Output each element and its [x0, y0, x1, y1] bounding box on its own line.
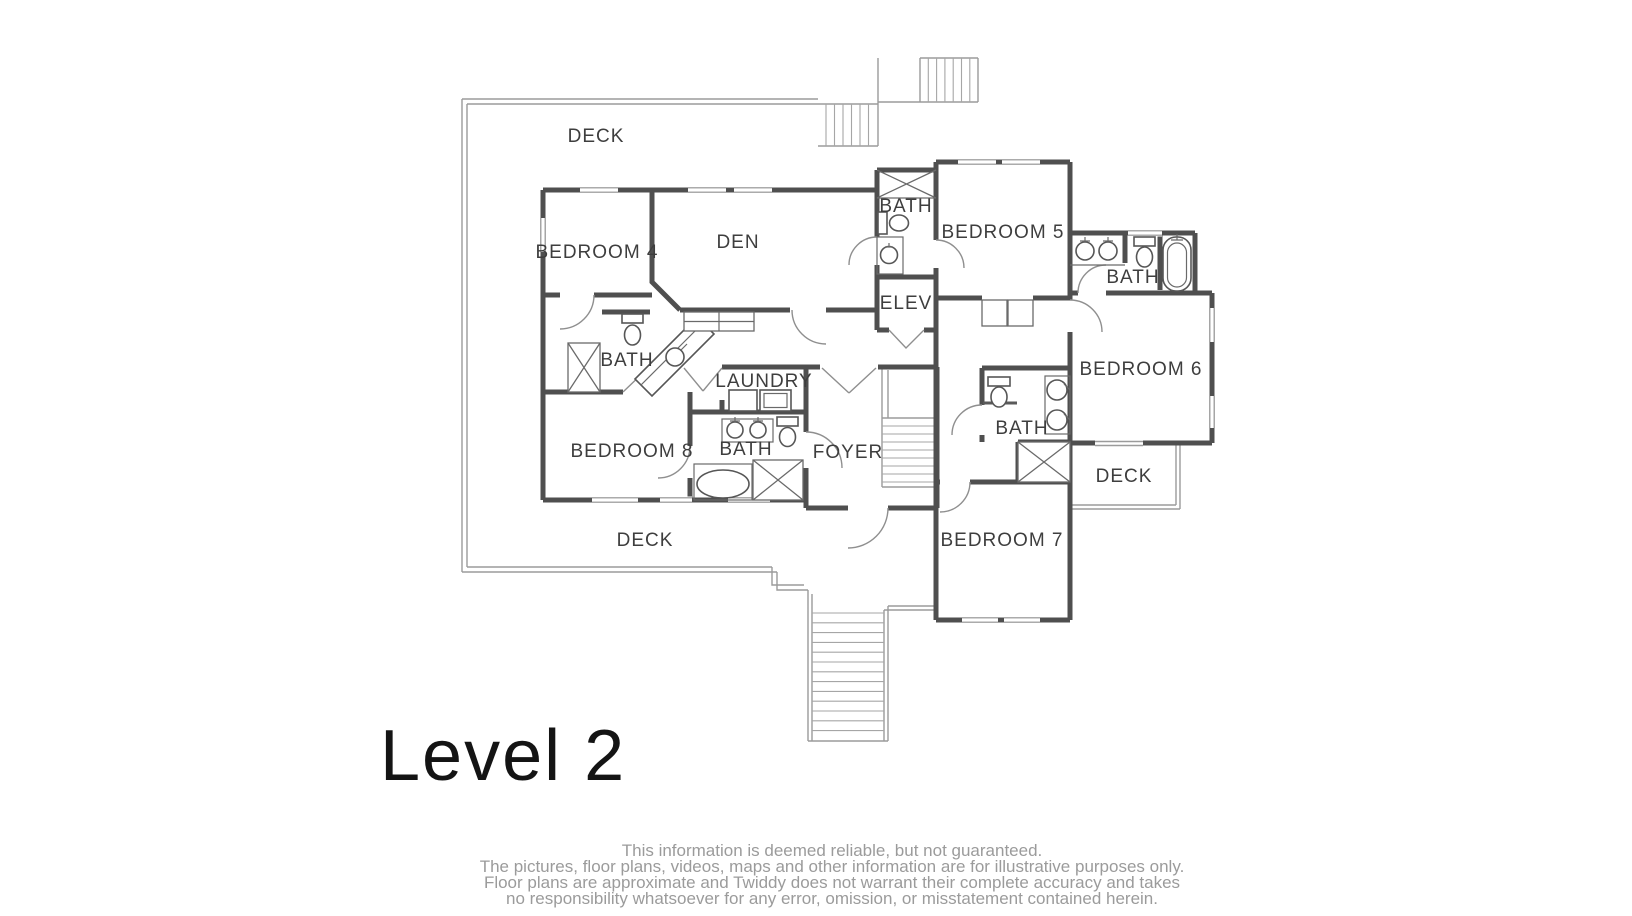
room-label-bedroom-4: BEDROOM 4: [535, 242, 658, 263]
room-label-bath-b4: BATH: [600, 350, 653, 371]
room-label-deck-top: DECK: [568, 126, 625, 147]
room-label-bath-elev: BATH: [879, 196, 932, 217]
room-label-bedroom-7: BEDROOM 7: [940, 530, 1063, 551]
tub-icon: [1163, 234, 1191, 291]
room-label-bedroom-6: BEDROOM 6: [1079, 359, 1202, 380]
room-label-laundry: LAUNDRY: [715, 371, 812, 392]
room-label-den: DEN: [716, 232, 759, 253]
disclaimer-line-4: no responsibility whatsoever for any err…: [506, 889, 1158, 908]
sink-icon: [877, 237, 903, 274]
closet-icon: [753, 460, 803, 500]
foyer-stairs: [882, 369, 937, 487]
room-label-deck-right: DECK: [1096, 466, 1153, 487]
deck-stairs-bottom: [808, 590, 936, 741]
dryer-icon: [760, 390, 791, 411]
closet-icon: [877, 170, 936, 198]
room-label-bath-b6: BATH: [1106, 267, 1159, 288]
floorplan-drawing: DECK BEDROOM 4 DEN BATH BEDROOM 8 LAUNDR…: [0, 0, 1632, 916]
toilet-icon: [622, 314, 643, 345]
toilet-icon: [1134, 237, 1155, 267]
disclaimer-text: This information is deemed reliable, but…: [480, 841, 1185, 908]
closet-icon: [982, 300, 1033, 326]
washer-icon: [729, 390, 757, 411]
toilet-icon: [777, 417, 798, 447]
room-label-elev: ELEV: [880, 293, 933, 314]
room-label-bedroom-5: BEDROOM 5: [941, 222, 1064, 243]
closet-icon: [568, 343, 600, 392]
room-label-deck-bottom: DECK: [617, 530, 674, 551]
room-label-bath-b7: BATH: [995, 418, 1048, 439]
page-title: Level 2: [380, 716, 626, 796]
den-closet-icon: [684, 312, 754, 331]
room-label-bedroom-8: BEDROOM 8: [570, 441, 693, 462]
deck-stairs-top: [818, 58, 978, 146]
room-label-foyer: FOYER: [813, 442, 883, 463]
floorplan-page: DECK BEDROOM 4 DEN BATH BEDROOM 8 LAUNDR…: [0, 0, 1632, 916]
vanity-sinks-icon: [1070, 237, 1125, 265]
room-label-bath-b8: BATH: [719, 439, 772, 460]
closet-icon: [1018, 442, 1070, 482]
vanity-sinks-icon: [1045, 376, 1070, 434]
tub-icon: [694, 464, 752, 500]
